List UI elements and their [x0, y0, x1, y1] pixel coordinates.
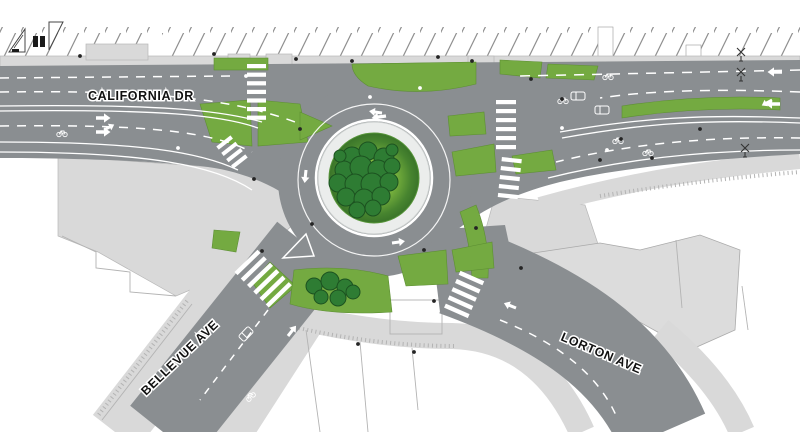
roundabout-plan-canvas: CALIFORNIA DR BELLEVUE AVE LORTON AVE: [0, 0, 800, 432]
plan-drawing: CALIFORNIA DR BELLEVUE AVE LORTON AVE: [0, 0, 800, 432]
street-label-california-dr: CALIFORNIA DR: [88, 89, 194, 103]
station-platform: [86, 44, 148, 60]
